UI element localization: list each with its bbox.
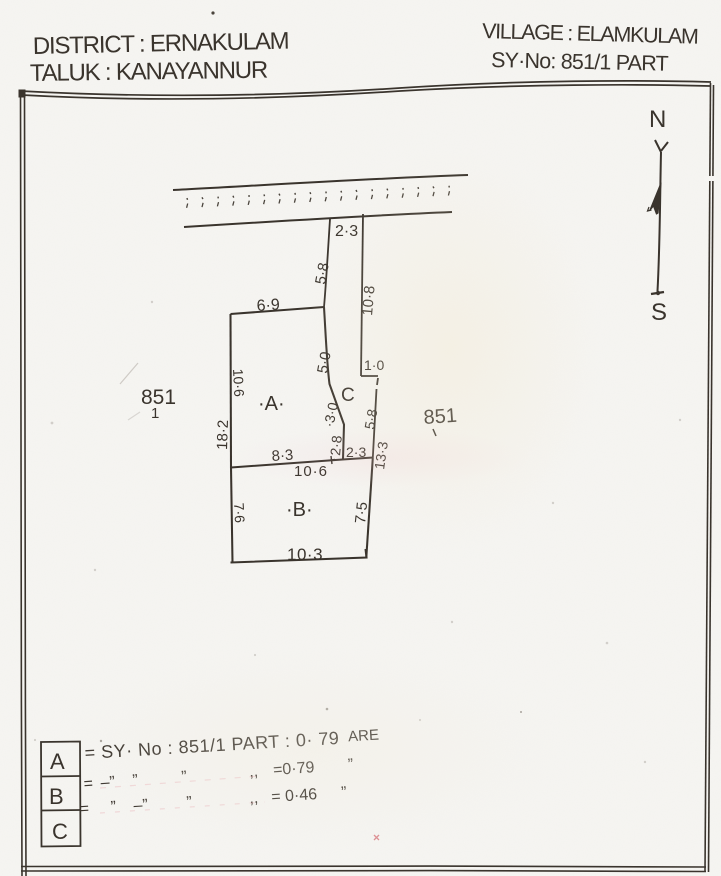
svg-text:18·2: 18·2 (214, 420, 232, 451)
svg-text:SY·No: 851/1 PART: SY·No: 851/1 PART (491, 48, 669, 76)
svg-text:7·6: 7·6 (231, 502, 248, 523)
svg-text:10·6: 10·6 (230, 368, 247, 397)
svg-text:·B·: ·B· (286, 499, 313, 521)
svg-text:1: 1 (151, 405, 159, 422)
svg-text:·A·: ·A· (258, 393, 285, 415)
svg-text:10·3: 10·3 (287, 545, 323, 564)
svg-text:C: C (52, 819, 68, 844)
svg-text:B: B (49, 784, 64, 809)
svg-text:=: = (79, 800, 89, 818)
svg-text:S: S (651, 299, 667, 326)
svg-text:N: N (649, 106, 666, 133)
svg-text:TALUK : KANAYANNUR: TALUK : KANAYANNUR (30, 57, 268, 87)
svg-text:DISTRICT : ERNAKULAM: DISTRICT : ERNAKULAM (33, 28, 289, 60)
svg-text:6·9: 6·9 (256, 296, 280, 315)
